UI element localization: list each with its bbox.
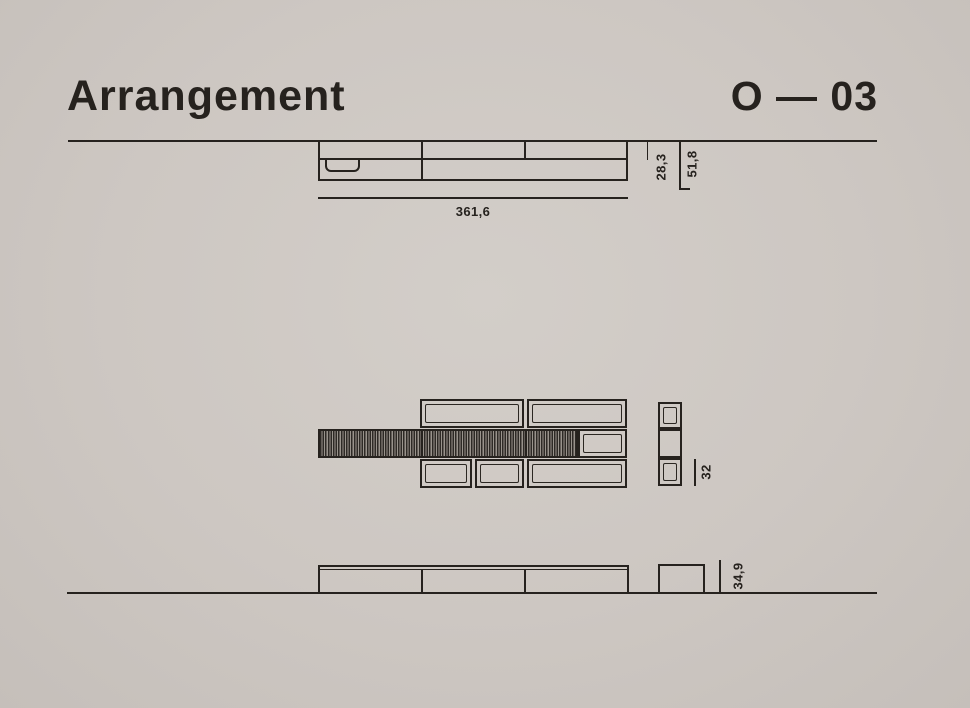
- module-height-dim-line: [694, 459, 696, 487]
- width-dim-label: 361,6: [318, 204, 628, 219]
- cabinet-door-top-left: [420, 399, 524, 428]
- page-title: Arrangement: [67, 74, 346, 119]
- slatted-band: [318, 429, 578, 458]
- top-view-shelf-line: [318, 158, 628, 160]
- top-view-divider-2: [524, 140, 526, 160]
- top-view-outline: [318, 140, 628, 181]
- cabinet-door-middle-right: [578, 429, 628, 458]
- bottom-view-divider-1: [421, 569, 423, 592]
- door-panel-outline: [532, 464, 623, 483]
- catalog-page: Arrangement O — 03 361,6 28,3 51,8: [0, 0, 970, 708]
- page-code: O — 03: [731, 75, 878, 118]
- unit-height-dim-label: 34,9: [730, 563, 745, 590]
- front-depth-dim-label: 28,3: [654, 154, 669, 181]
- door-panel-outline: [425, 464, 467, 483]
- cabinet-door-bottom-3: [527, 459, 628, 488]
- door-panel-outline: [663, 463, 678, 481]
- bottom-view-side-unit: [658, 564, 705, 592]
- floor-line: [67, 592, 877, 594]
- module-height-dim-label: 32: [698, 464, 713, 479]
- door-panel-outline: [663, 407, 678, 424]
- header: Arrangement O — 03: [67, 74, 878, 119]
- front-depth-dim-line: [647, 141, 649, 160]
- bottom-view-counter-line: [318, 569, 630, 571]
- side-unit-top-box: [658, 402, 683, 429]
- top-view-handle-recess: [325, 159, 360, 172]
- door-panel-outline: [425, 404, 519, 423]
- slatted-band-joint-1: [421, 431, 423, 456]
- side-unit-middle-box: [658, 429, 683, 458]
- total-depth-dim-label: 51,8: [684, 150, 699, 177]
- door-panel-outline: [532, 404, 623, 423]
- side-unit-bottom-box: [658, 458, 683, 486]
- bottom-view-divider-2: [524, 569, 526, 592]
- total-depth-dim-tick: [679, 188, 690, 190]
- top-view-divider-1: [421, 140, 423, 181]
- slatted-band-joint-2: [525, 431, 527, 456]
- cabinet-door-bottom-1: [420, 459, 472, 488]
- cabinet-door-top-right: [527, 399, 628, 428]
- unit-height-dim-line: [719, 560, 721, 592]
- width-dim-line: [318, 197, 628, 199]
- door-panel-outline: [583, 434, 623, 453]
- door-panel-outline: [480, 464, 519, 483]
- cabinet-door-bottom-2: [475, 459, 524, 488]
- total-depth-dim-line: [679, 141, 681, 189]
